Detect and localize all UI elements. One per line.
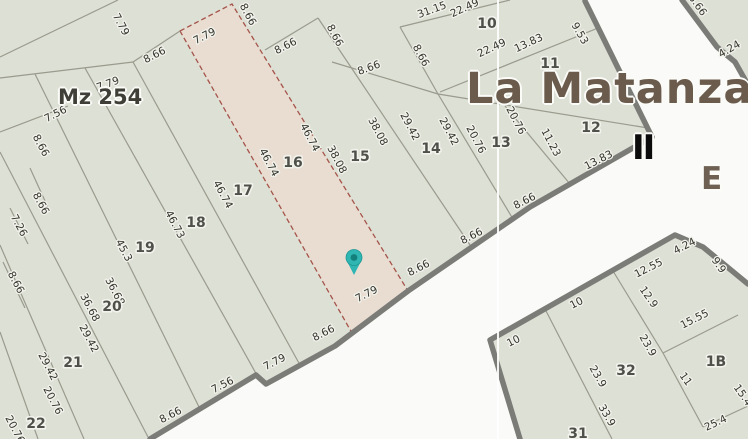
- lot-number-label: 15: [350, 149, 369, 165]
- street-roman-numeral-label: II: [632, 128, 653, 168]
- block-number-label: Mz 254: [58, 85, 142, 109]
- lot-number-label: 12: [581, 120, 600, 136]
- lot-number-label: 13: [491, 135, 510, 151]
- location-marker-dot: [351, 254, 358, 261]
- lot-number-label: 20: [102, 299, 122, 315]
- lot-number-label: 14: [421, 141, 441, 157]
- cadastral-map-canvas[interactable]: 7.798.667.797.568.668.667.268.667.798.66…: [0, 0, 748, 439]
- lot-number-label: 10: [477, 16, 497, 32]
- lot-number-label: 32: [616, 363, 635, 379]
- lot-number-label: 17: [233, 183, 252, 199]
- lot-number-label: 19: [135, 240, 154, 256]
- lot-number-label: 18: [186, 215, 205, 231]
- lot-number-label: 22: [26, 416, 45, 432]
- zone-letter-label: E: [701, 161, 722, 197]
- lot-number-label: 1B: [706, 354, 726, 370]
- lot-number-label: 31: [568, 426, 587, 439]
- lot-number-label: 16: [283, 155, 302, 171]
- lot-number-label: 21: [63, 355, 82, 371]
- city-title-label: La Matanza: [466, 64, 748, 114]
